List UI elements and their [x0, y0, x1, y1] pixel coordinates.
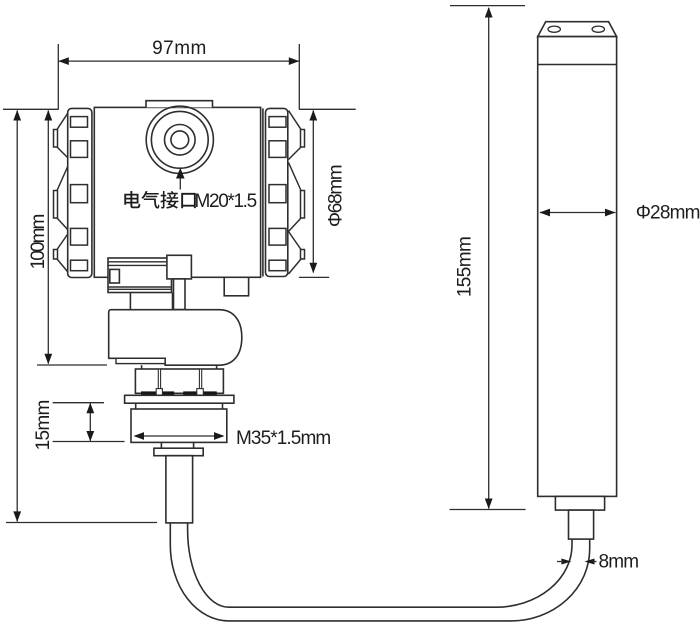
svg-text:M35*1.5mm: M35*1.5mm — [236, 428, 330, 449]
svg-text:100mm: 100mm — [28, 215, 49, 270]
svg-text:Φ68mm: Φ68mm — [326, 165, 347, 227]
svg-text:8mm: 8mm — [599, 552, 639, 573]
svg-text:97mm: 97mm — [152, 38, 207, 59]
svg-text:15mm: 15mm — [33, 400, 54, 450]
svg-text:Φ28mm: Φ28mm — [636, 203, 700, 224]
svg-text:M20*1.5: M20*1.5 — [195, 191, 257, 212]
svg-text:155mm: 155mm — [455, 237, 476, 297]
